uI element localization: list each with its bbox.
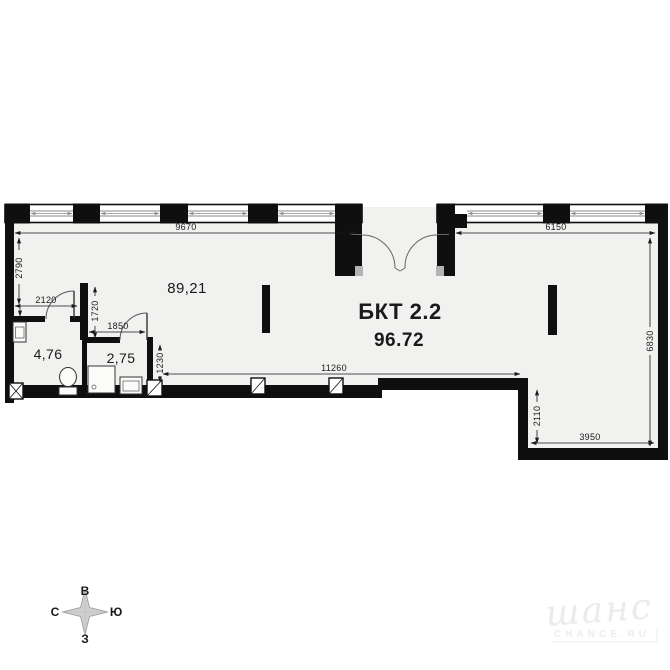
sink bbox=[120, 377, 142, 394]
compass-south: Ю bbox=[110, 605, 122, 619]
niche-1 bbox=[9, 383, 23, 399]
watermark-caption: CHANCE.RU bbox=[554, 629, 650, 640]
dim-label-6830: 6830 bbox=[645, 330, 655, 351]
wc-area-label: 2,75 bbox=[107, 350, 136, 366]
unit-total-area-label: 96.72 bbox=[374, 330, 424, 351]
column-left bbox=[262, 285, 270, 333]
dim-label-2790: 2790 bbox=[14, 257, 24, 278]
watermark: шанс CHANCE.RU bbox=[544, 586, 657, 642]
dim-label-6150: 6150 bbox=[545, 222, 566, 232]
dim-label-1850: 1850 bbox=[107, 321, 128, 331]
compass-north: С bbox=[51, 605, 60, 619]
column-right bbox=[548, 285, 557, 335]
floor-plan-page: 9670 6150 2120 1850 11260 3950 2790 1720… bbox=[0, 0, 670, 670]
wall-bottom-mid bbox=[378, 378, 523, 390]
wall-left bbox=[5, 204, 14, 403]
dim-label-9670: 9670 bbox=[175, 222, 196, 232]
dim-label-1230: 1230 bbox=[155, 352, 165, 373]
compass-east: В bbox=[81, 584, 90, 598]
dim-label-3950: 3950 bbox=[579, 432, 600, 442]
niche-4 bbox=[329, 378, 343, 394]
floor-plan-drawing: 9670 6150 2120 1850 11260 3950 2790 1720… bbox=[0, 0, 670, 670]
entry-pier-left bbox=[335, 204, 362, 277]
bathroom-area-label: 4,76 bbox=[34, 346, 63, 362]
compass-west: З bbox=[81, 632, 89, 646]
dim-label-1720: 1720 bbox=[90, 300, 100, 321]
unit-name-label: БКТ 2.2 bbox=[358, 299, 441, 324]
main-room-area-label: 89,21 bbox=[167, 280, 207, 297]
entry-pier-right bbox=[437, 204, 455, 277]
washbasin bbox=[13, 322, 26, 342]
dim-label-11260: 11260 bbox=[321, 363, 347, 373]
wall-right bbox=[658, 204, 668, 460]
compass-rose: В Ю С З bbox=[51, 584, 123, 646]
niche-3 bbox=[251, 378, 265, 394]
toilet bbox=[59, 368, 77, 396]
wall-bottom-right bbox=[518, 448, 668, 460]
shower-tray bbox=[88, 366, 115, 393]
dim-label-2120: 2120 bbox=[35, 295, 56, 305]
niche-2 bbox=[147, 380, 162, 396]
dim-label-2110: 2110 bbox=[532, 406, 542, 427]
wall-step bbox=[518, 378, 528, 456]
watermark-logo: шанс bbox=[544, 586, 654, 634]
wall-spur bbox=[80, 283, 88, 340]
